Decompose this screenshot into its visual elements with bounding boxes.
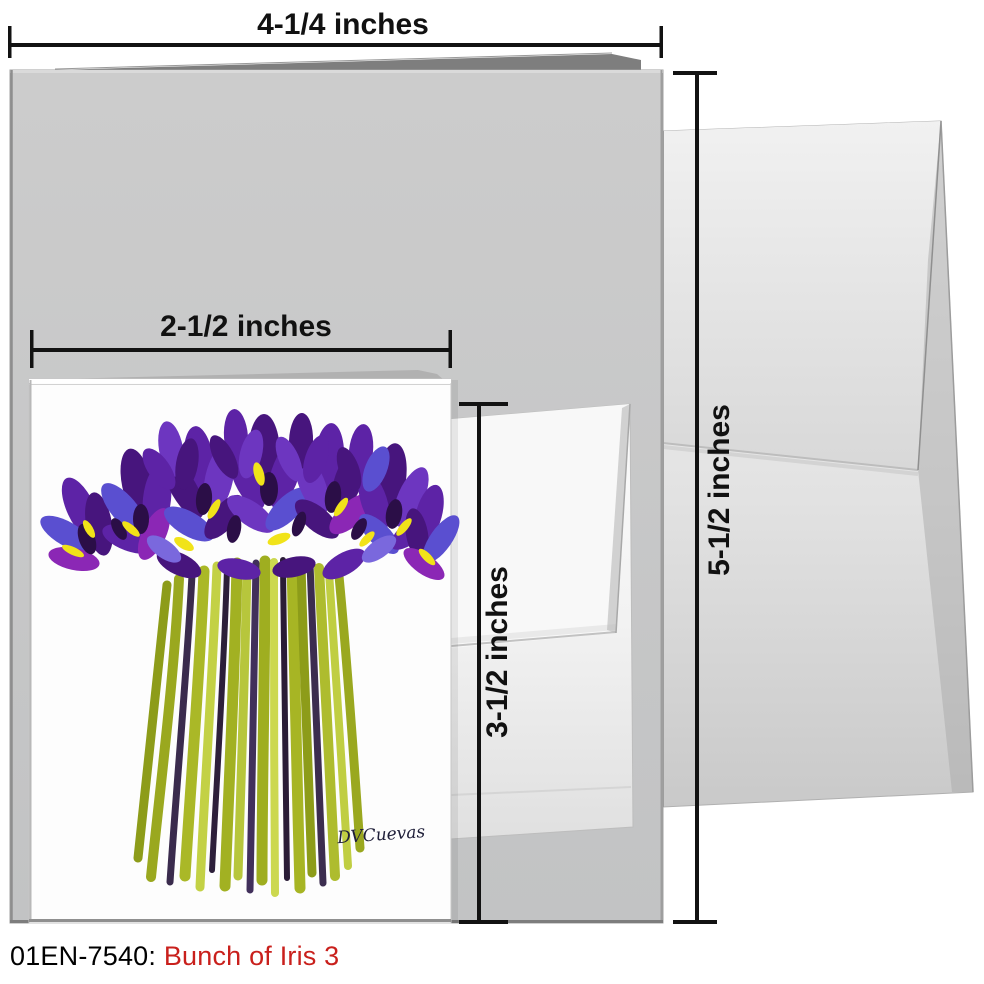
product-code: 01EN-7540:	[10, 941, 156, 971]
dim-label-card-width: 4-1/4 inches	[257, 10, 429, 40]
dim-label-card-height: 5-1/2 inches	[705, 404, 735, 576]
greeting-card-small: DVCuevas	[29, 370, 466, 923]
product-title: Bunch of Iris 3	[164, 941, 340, 971]
dim-label-inner-card-height: 3-1/2 inches	[483, 566, 513, 738]
product-caption: 01EN-7540: Bunch of Iris 3	[10, 943, 339, 970]
product-mockup-graphic: DVCuevas	[0, 0, 984, 984]
dim-label-inner-card-width: 2-1/2 inches	[160, 312, 332, 342]
